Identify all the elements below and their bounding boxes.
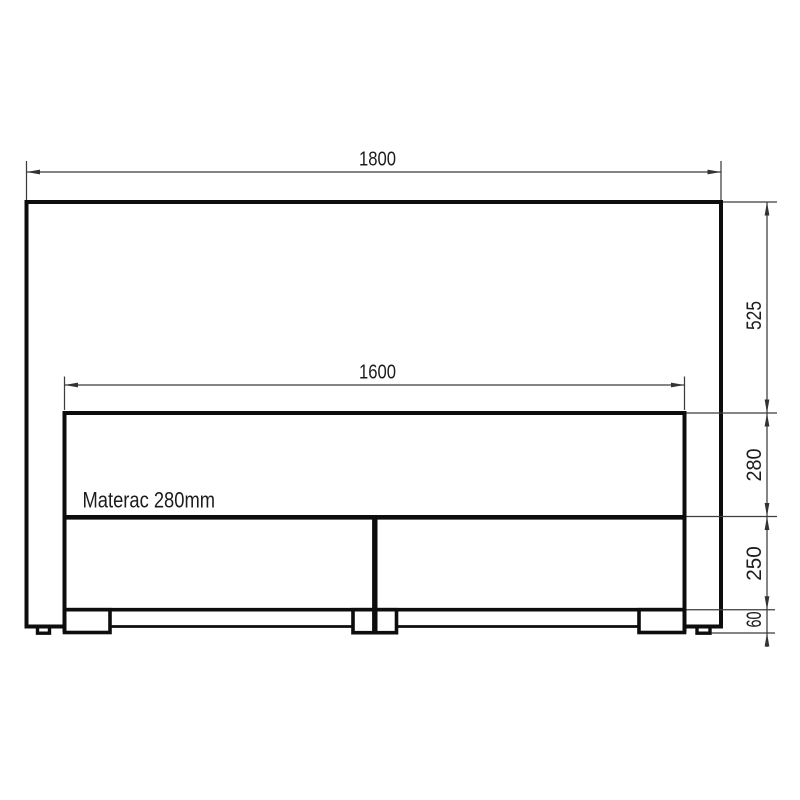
svg-text:1600: 1600 — [359, 361, 396, 384]
svg-text:280: 280 — [743, 449, 766, 482]
svg-text:250: 250 — [743, 546, 766, 581]
svg-text:1800: 1800 — [359, 148, 396, 171]
svg-text:60: 60 — [743, 612, 766, 628]
svg-text:525: 525 — [743, 301, 766, 330]
svg-text:Materac 280mm: Materac 280mm — [83, 488, 216, 513]
